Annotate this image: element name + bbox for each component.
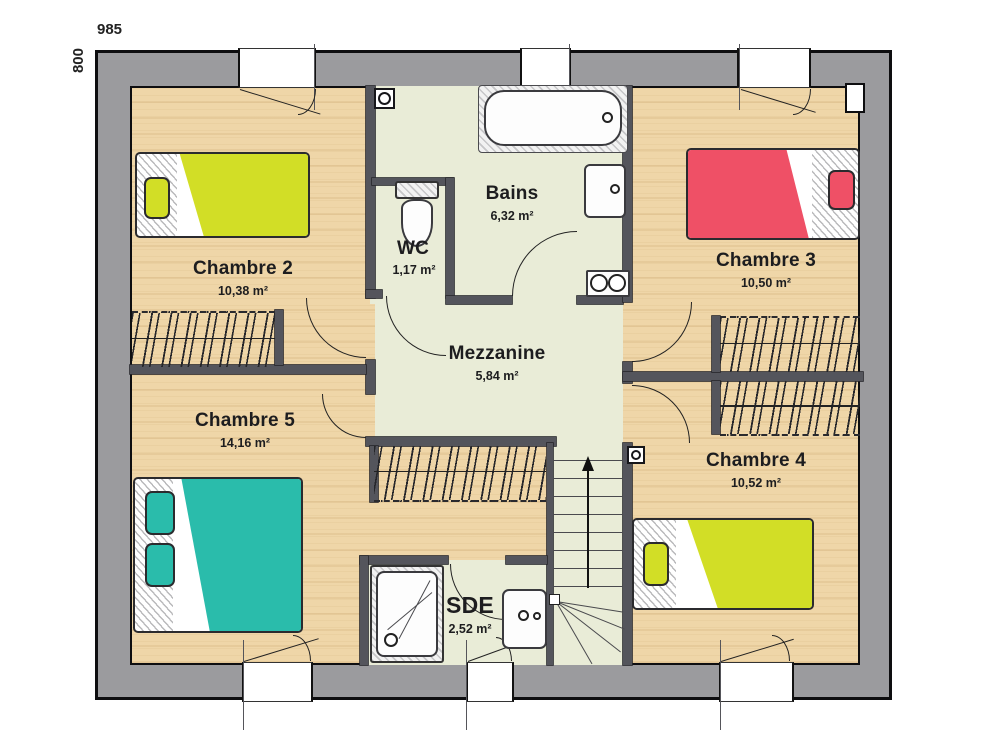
bed-chambre2 [135,152,310,238]
tick-window-chambre5 [243,640,244,730]
wall-closet-ch4-stub [712,381,720,434]
wall-bains-bottom-right [577,296,623,304]
appliance-circle-icon [608,274,626,292]
wall-sde-top-left [360,556,448,564]
dimension-height-label: 800 [70,48,87,73]
window-bains [520,48,571,88]
stair-newel-post [549,594,560,605]
label-chambre3: Chambre 3 [716,250,816,272]
toilet-tank [395,181,439,199]
area-chambre5: 14,16 m² [220,436,270,450]
bed-chambre3 [686,148,860,240]
wall-closet-ch2-stub [275,310,283,365]
label-chambre4: Chambre 4 [706,450,806,472]
wall-ch3-ch4 [623,372,863,381]
wall-sde-top-right [506,556,547,564]
wall-wc-bottom-stub [366,290,382,298]
wall-mezzanine-left-stub [366,360,375,394]
vent-icon [374,88,395,109]
washbasin-bains-faucet-icon [610,184,620,194]
washbasin-bains [584,164,626,218]
tick-window-sde [466,640,467,730]
area-bains: 6,32 m² [490,209,533,223]
wall-stairs-right [623,443,632,665]
window-sde [466,662,514,702]
bed-chambre4 [632,518,814,610]
label-sde: SDE [446,592,494,619]
label-mezzanine: Mezzanine [449,343,546,365]
area-chambre4: 10,52 m² [731,476,781,490]
wall-notch [845,83,865,113]
label-chambre5: Chambre 5 [195,410,295,432]
label-wc: WC [397,238,429,260]
wall-wc-right [446,178,454,298]
washbasin-sde-faucet-icon [518,610,529,621]
tick-window-chambre4 [720,640,721,730]
bed-chambre5 [133,477,303,633]
bathtub-faucet-icon [602,112,613,123]
stair-up-arrow-icon [582,456,594,471]
window-chambre5 [242,662,313,702]
wall-bains-bottom-left [446,296,512,304]
appliance-circle-icon [590,274,608,292]
stair-direction-line [587,470,589,588]
area-wc: 1,17 m² [392,263,435,277]
shower-drain-icon [384,633,398,647]
area-sde: 2,52 m² [448,622,491,636]
floor-plan: 985 800 [0,0,1000,743]
wardrobe-chambre2 [132,311,275,367]
area-chambre2: 10,38 m² [218,284,268,298]
wall-sde-left [360,556,368,665]
wall-closet-ch3-stub [712,316,720,372]
wall-ch2-bains [366,86,375,298]
wall-stairs-left [547,443,553,665]
window-chambre2 [238,48,316,88]
wall-mezzanine-bottom [366,437,556,446]
vent-icon [627,446,645,464]
washbasin-sde-knob-icon [533,612,541,620]
window-chambre3 [737,48,811,88]
tick-window-chambre3 [739,44,740,110]
wardrobe-chambre3 [720,316,860,372]
window-chambre4 [719,662,794,702]
area-chambre3: 10,50 m² [741,276,791,290]
dimension-width-label: 985 [97,21,122,38]
label-bains: Bains [486,183,539,205]
label-chambre2: Chambre 2 [193,258,293,280]
area-mezzanine: 5,84 m² [475,369,518,383]
wardrobe-chambre4 [720,381,860,436]
wardrobe-chambre5 [374,446,546,502]
